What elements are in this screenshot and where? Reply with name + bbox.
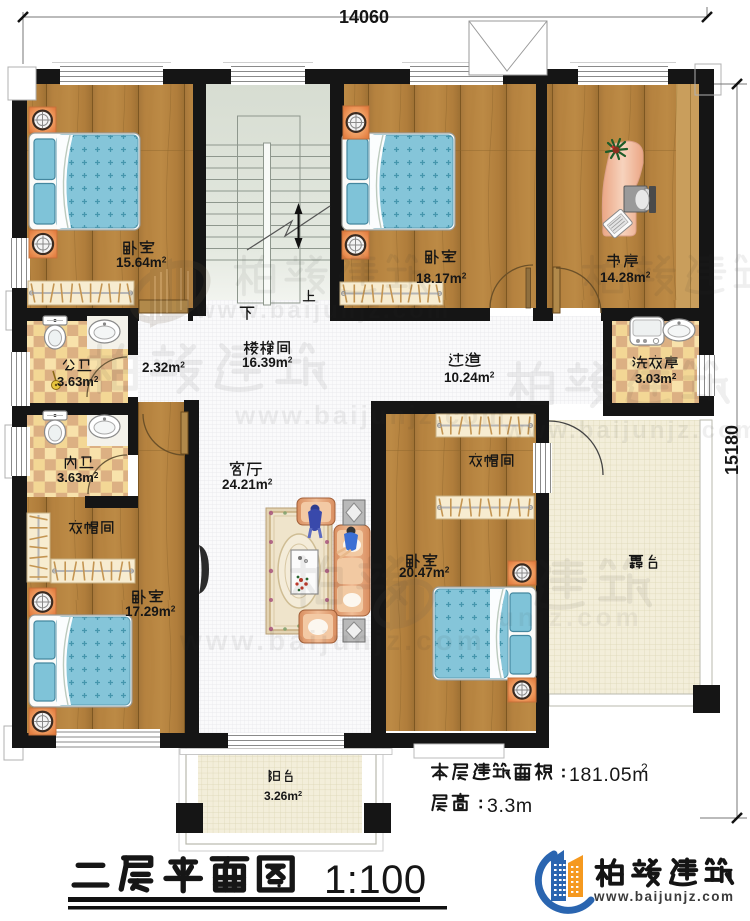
- svg-text:1:100: 1:100: [324, 858, 427, 902]
- svg-text:3.3m: 3.3m: [487, 795, 533, 817]
- svg-text:2: 2: [641, 761, 648, 775]
- svg-text:3.63m2: 3.63m2: [57, 470, 99, 485]
- svg-text:www.baijunjz.com: www.baijunjz.com: [234, 400, 507, 430]
- svg-text:24.21m2: 24.21m2: [222, 477, 273, 492]
- svg-text:2.32m2: 2.32m2: [142, 360, 185, 375]
- svg-text:www.baijunjz.com: www.baijunjz.com: [179, 625, 486, 656]
- svg-text:14060: 14060: [339, 7, 389, 27]
- svg-text:18.17m2: 18.17m2: [416, 271, 467, 286]
- svg-text:unjz.com: unjz.com: [498, 602, 643, 632]
- svg-text:3.63m2: 3.63m2: [57, 374, 99, 389]
- svg-text:14.28m2: 14.28m2: [600, 270, 651, 285]
- svg-text:www.baijunjz.com: www.baijunjz.com: [593, 889, 735, 904]
- svg-text:3.26m2: 3.26m2: [264, 789, 302, 803]
- svg-text:181.05m: 181.05m: [569, 764, 649, 786]
- svg-text:15.64m2: 15.64m2: [116, 255, 167, 270]
- svg-text:17.29m2: 17.29m2: [125, 604, 176, 619]
- svg-text:20.47m2: 20.47m2: [399, 565, 450, 580]
- svg-text:15180: 15180: [722, 425, 742, 475]
- svg-text:3.03m2: 3.03m2: [635, 371, 677, 386]
- svg-text:10.24m2: 10.24m2: [444, 370, 495, 385]
- svg-text:www.baijunjz.com: www.baijunjz.com: [195, 297, 451, 324]
- svg-text:www.baijunjz.com: www.baijunjz.com: [504, 417, 750, 444]
- svg-text:16.39m2: 16.39m2: [242, 355, 293, 370]
